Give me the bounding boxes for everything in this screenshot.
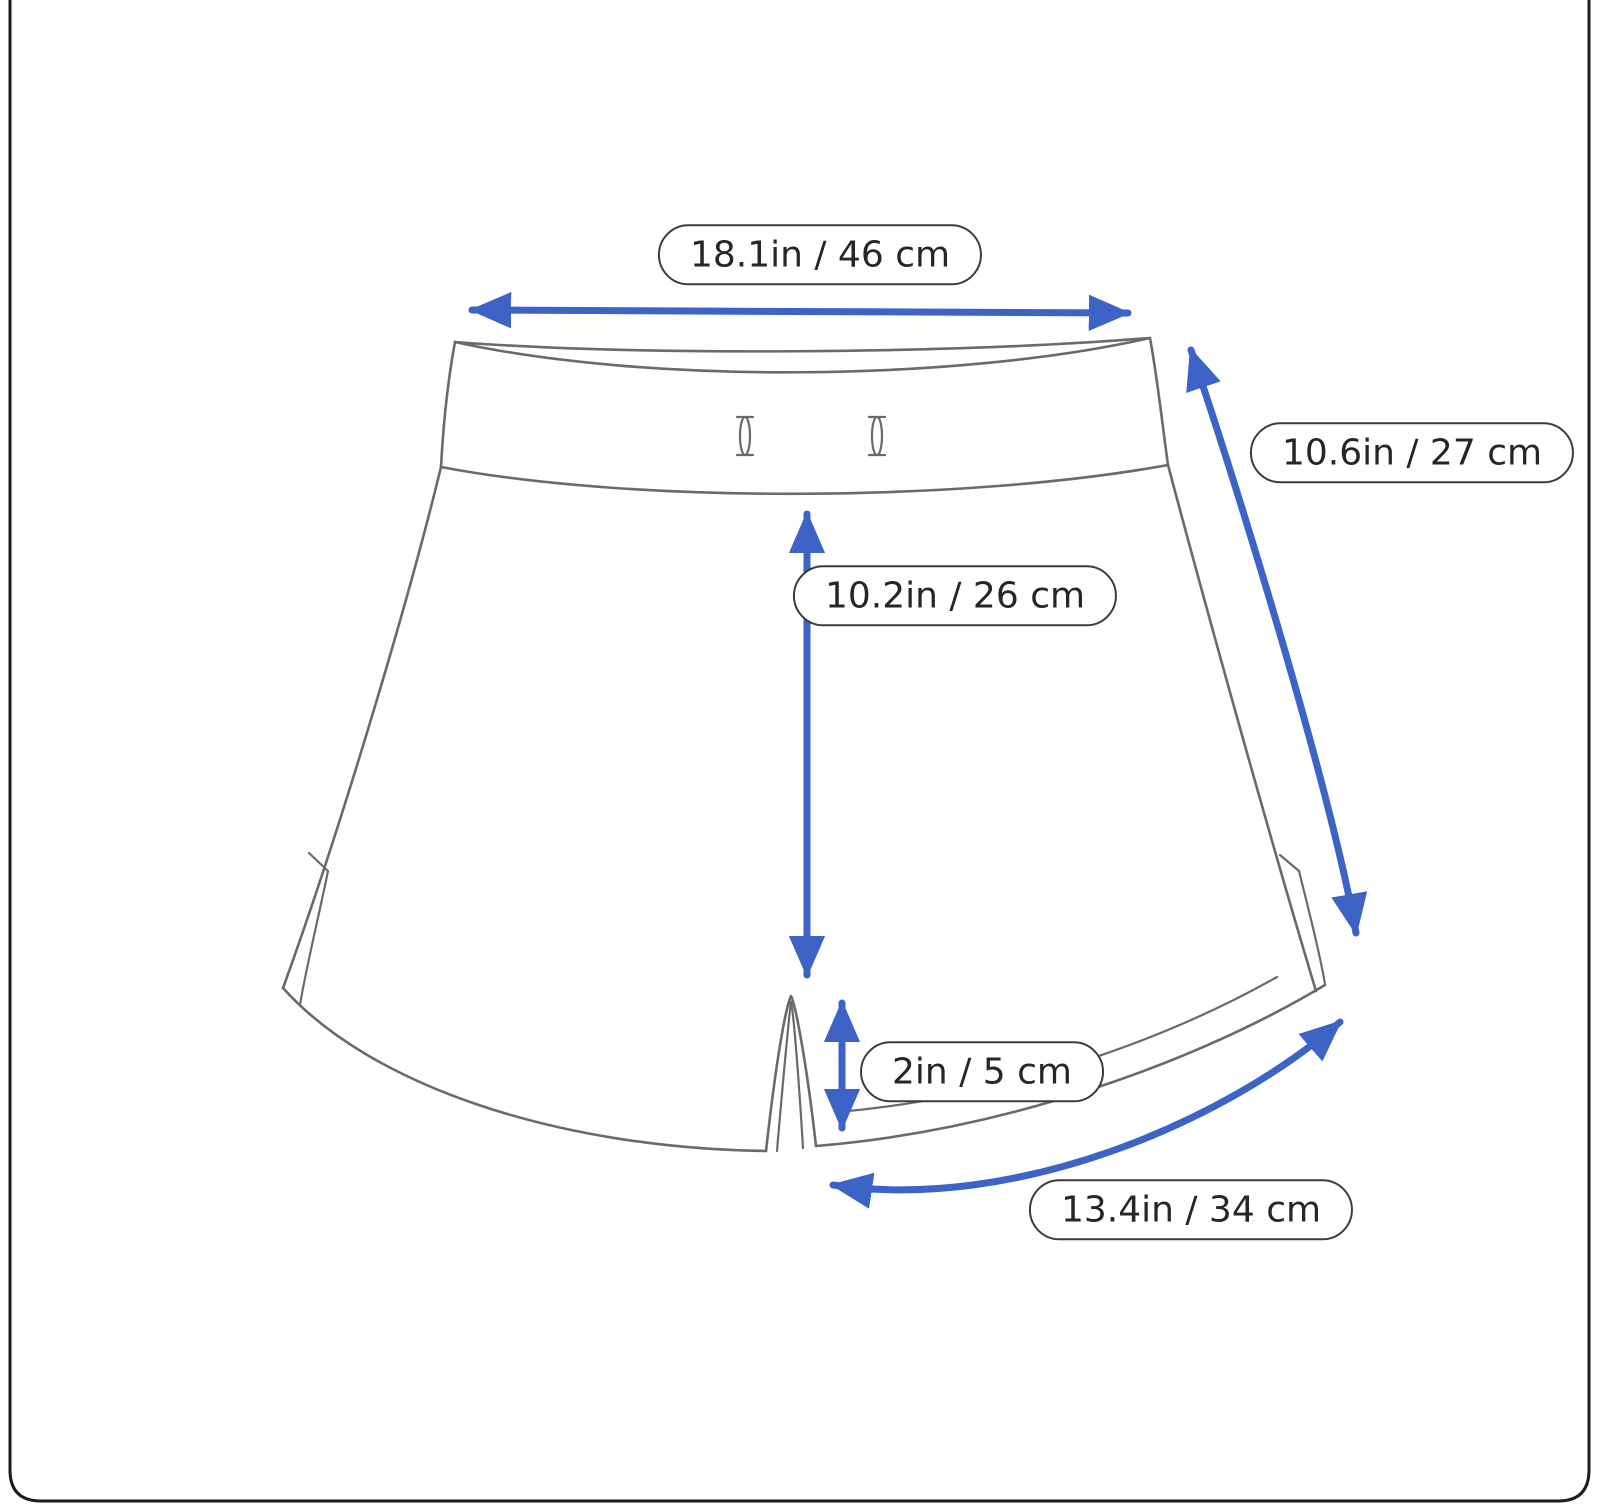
shorts-size-diagram: 18.1in / 46 cm 10.6in / 27 cm 10.2in / 2…	[0, 0, 1599, 1511]
waistband	[441, 338, 1168, 494]
center-hem-notch	[766, 996, 816, 1151]
waist-width-label: 18.1in / 46 cm	[658, 224, 982, 285]
left-leg	[283, 467, 766, 1151]
drawstring-eyelet-right	[869, 417, 885, 455]
waist-width-arrow	[472, 310, 1128, 313]
side-length-label: 10.6in / 27 cm	[1250, 422, 1574, 483]
drawstring-eyelet-left	[737, 417, 753, 455]
leg-opening-label: 13.4in / 34 cm	[1029, 1179, 1353, 1240]
inseam-label: 2in / 5 cm	[860, 1041, 1104, 1102]
front-length-label: 10.2in / 26 cm	[793, 565, 1117, 626]
